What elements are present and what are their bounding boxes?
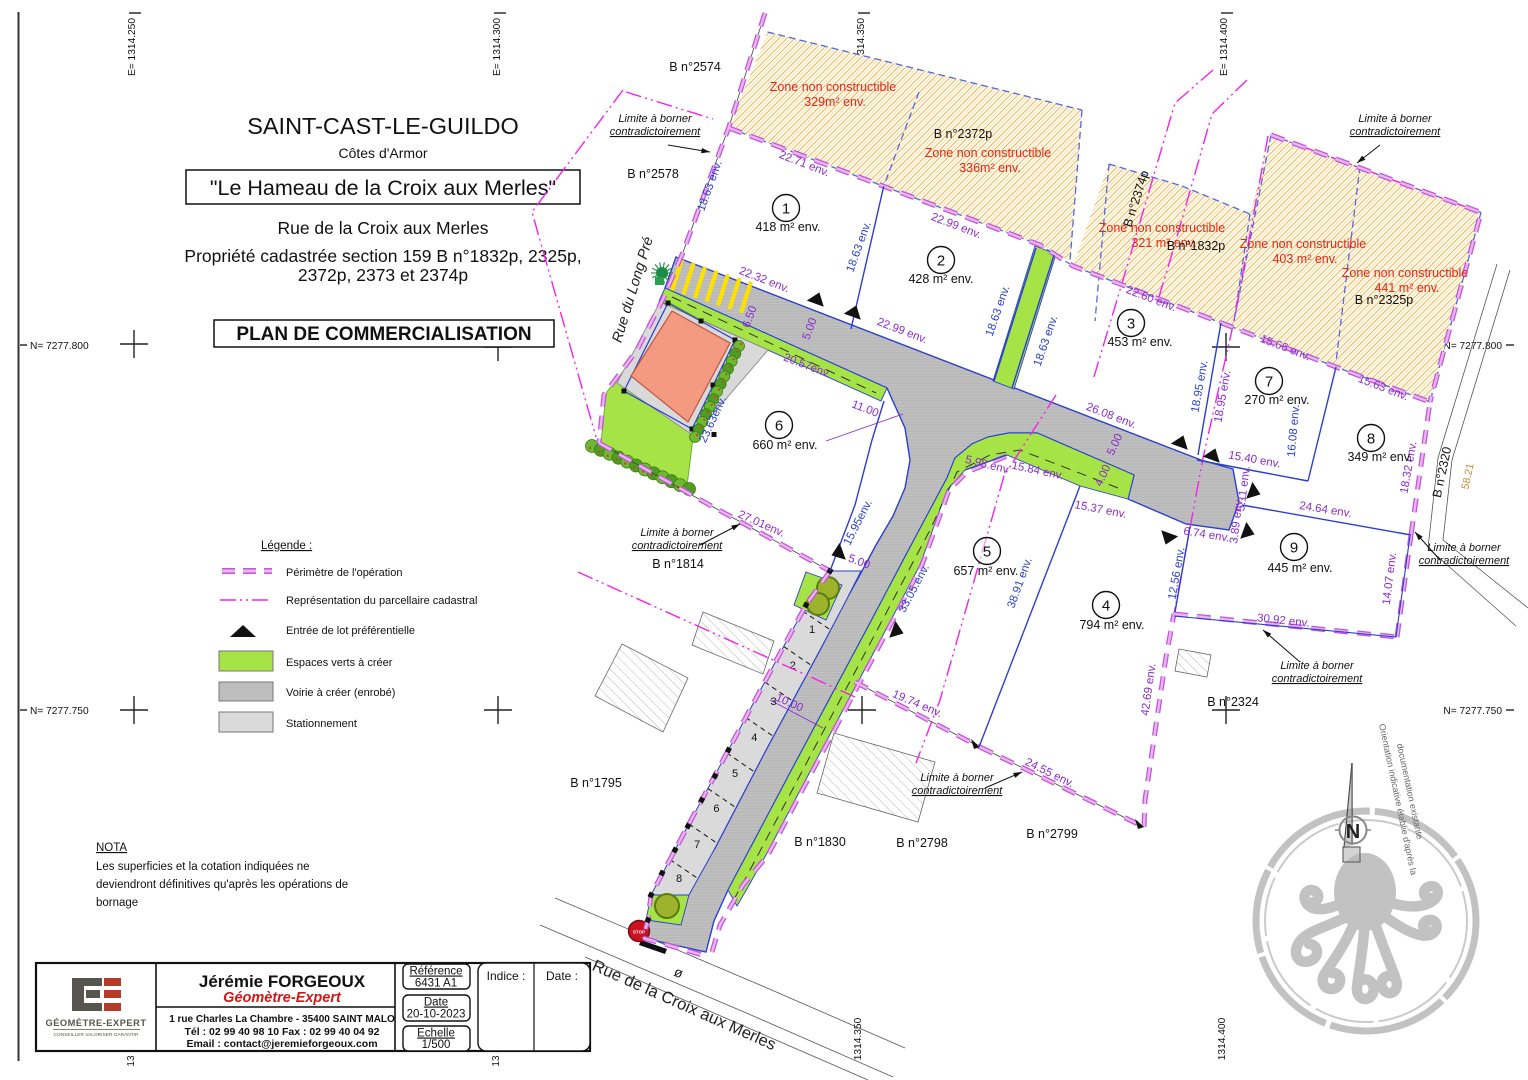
svg-text:13: 13: [126, 1055, 137, 1067]
svg-text:660 m² env.: 660 m² env.: [752, 438, 817, 452]
svg-text:Zone non constructible: Zone non constructible: [925, 146, 1052, 160]
svg-text:4: 4: [1102, 598, 1110, 615]
svg-text:5: 5: [983, 544, 991, 561]
svg-text:1: 1: [809, 624, 815, 636]
svg-text:E= 1314.300: E= 1314.300: [492, 18, 503, 76]
svg-text:453 m² env.: 453 m² env.: [1107, 335, 1172, 349]
svg-text:B n°2578: B n°2578: [627, 167, 679, 181]
svg-text:contradictoirement: contradictoirement: [1350, 126, 1441, 138]
svg-text:B n°1832p: B n°1832p: [1167, 239, 1226, 253]
svg-text:8: 8: [676, 873, 682, 885]
svg-text:7: 7: [1265, 374, 1273, 391]
svg-text:5: 5: [732, 768, 738, 780]
svg-text:13: 13: [491, 1055, 502, 1067]
svg-text:bornage: bornage: [96, 897, 138, 909]
svg-text:B n°2799: B n°2799: [1026, 827, 1078, 841]
svg-text:Zone non constructible: Zone non constructible: [1099, 221, 1226, 235]
svg-text:4: 4: [751, 732, 757, 744]
svg-text:Représentation du parcellaire: Représentation du parcellaire cadastral: [286, 595, 477, 607]
svg-text:20-10-2023: 20-10-2023: [407, 1009, 466, 1021]
svg-text:B n°1830: B n°1830: [794, 835, 846, 849]
svg-text:1: 1: [782, 201, 790, 218]
svg-text:Limite à borner: Limite à borner: [1280, 660, 1355, 672]
svg-text:Date: Date: [424, 997, 448, 1009]
svg-text:Limite à borner: Limite à borner: [1358, 113, 1433, 125]
svg-text:N= 7277.750: N= 7277.750: [1443, 706, 1502, 717]
svg-text:contradictoirement: contradictoirement: [1419, 555, 1510, 567]
svg-text:B n°2372p: B n°2372p: [934, 127, 993, 141]
svg-text:Espaces verts à créer: Espaces verts à créer: [286, 657, 393, 669]
svg-text:403 m² env.: 403 m² env.: [1272, 252, 1337, 266]
svg-text:B n°2325p: B n°2325p: [1355, 293, 1414, 307]
svg-text:Zone non constructible: Zone non constructible: [770, 80, 897, 94]
svg-text:2: 2: [937, 253, 945, 270]
svg-text:E= 1314.250: E= 1314.250: [127, 18, 138, 76]
svg-text:B n°1795: B n°1795: [570, 776, 622, 790]
svg-text:Tél : 02 99 40 98 10 Fax : 0: Tél : 02 99 40 98 10 Fax : 02 99 40 04 9…: [185, 1026, 380, 1038]
svg-text:B n°2324: B n°2324: [1207, 695, 1259, 709]
svg-text:445 m² env.: 445 m² env.: [1267, 561, 1332, 575]
svg-text:contradictoirement: contradictoirement: [610, 126, 701, 138]
svg-text:2372p, 2373 et 2374p: 2372p, 2373 et 2374p: [298, 265, 468, 285]
svg-text:B n°2798: B n°2798: [896, 836, 948, 850]
svg-text:STOP: STOP: [633, 930, 645, 935]
svg-text:3: 3: [1127, 316, 1135, 333]
svg-text:Rue de la Croix aux Merles: Rue de la Croix aux Merles: [277, 218, 488, 238]
svg-text:349 m² env.: 349 m² env.: [1347, 450, 1412, 464]
svg-text:8: 8: [1367, 431, 1375, 448]
svg-text:B n°2574: B n°2574: [669, 60, 721, 74]
svg-text:1 rue Charles La Chambre - 354: 1 rue Charles La Chambre - 35400 SAINT M…: [169, 1014, 395, 1025]
svg-text:contradictoirement: contradictoirement: [632, 540, 723, 552]
svg-text:Limite à borner: Limite à borner: [920, 772, 995, 784]
svg-text:418 m² env.: 418 m² env.: [755, 220, 820, 234]
svg-text:GÉOMÈTRE-EXPERT: GÉOMÈTRE-EXPERT: [46, 1018, 147, 1028]
svg-text:Limite à borner: Limite à borner: [1427, 542, 1502, 554]
svg-text:Limite à borner: Limite à borner: [640, 527, 715, 539]
svg-text:Email : contact@jeremieforgeou: Email : contact@jeremieforgeoux.com: [186, 1038, 377, 1050]
svg-text:9: 9: [1290, 540, 1298, 557]
svg-text:Propriété cadastrée section 15: Propriété cadastrée section 159 B n°1832…: [184, 246, 581, 266]
svg-text:deviendront définitives qu'apr: deviendront définitives qu'après les opé…: [96, 879, 348, 891]
svg-text:N: N: [1346, 821, 1360, 843]
svg-text:1/500: 1/500: [422, 1039, 451, 1051]
svg-text:N= 7277.750: N= 7277.750: [30, 706, 89, 717]
svg-text:1314.400: 1314.400: [1217, 1017, 1228, 1060]
svg-text:Référence: Référence: [409, 966, 462, 978]
svg-text:657 m² env.: 657 m² env.: [953, 564, 1018, 578]
svg-text:Limite à borner: Limite à borner: [618, 113, 693, 125]
svg-text:Zone non constructible: Zone non constructible: [1240, 237, 1367, 251]
svg-text:B n°1814: B n°1814: [652, 557, 704, 571]
svg-text:NOTA: NOTA: [96, 842, 127, 854]
svg-text:contradictoirement: contradictoirement: [912, 785, 1003, 797]
svg-text:1314.350: 1314.350: [853, 1017, 864, 1060]
svg-text:E= 1314.400: E= 1314.400: [1219, 18, 1230, 76]
svg-text:Indice :: Indice :: [487, 969, 526, 983]
svg-text:336m² env.: 336m² env.: [959, 161, 1021, 175]
svg-text:Entrée de lot préférentielle: Entrée de lot préférentielle: [286, 625, 415, 637]
svg-text:Côtes d'Armor: Côtes d'Armor: [338, 145, 427, 161]
svg-text:428 m² env.: 428 m² env.: [908, 272, 973, 286]
svg-text:Jérémie FORGEOUX: Jérémie FORGEOUX: [199, 972, 366, 991]
svg-text:7: 7: [694, 839, 700, 851]
svg-text:Stationnement: Stationnement: [286, 718, 357, 730]
svg-text:Zone non constructible: Zone non constructible: [1342, 266, 1469, 280]
svg-text:6: 6: [775, 418, 783, 435]
svg-text:6: 6: [713, 803, 719, 815]
svg-text:Echelle: Echelle: [417, 1028, 455, 1040]
svg-text:Géomètre-Expert: Géomètre-Expert: [223, 990, 342, 1006]
svg-text:270 m² env.: 270 m² env.: [1244, 393, 1309, 407]
svg-text:Les superficies et la cotation: Les superficies et la cotation indiquées…: [96, 861, 310, 873]
svg-text:6431 A1: 6431 A1: [415, 978, 457, 990]
svg-text:Date :: Date :: [546, 969, 578, 983]
svg-text:CONSEILLER VALORISER GARANTIR: CONSEILLER VALORISER GARANTIR: [54, 1032, 139, 1038]
svg-text:794 m² env.: 794 m² env.: [1079, 618, 1144, 632]
svg-text:Périmètre de l'opération: Périmètre de l'opération: [286, 567, 402, 579]
svg-text:SAINT-CAST-LE-GUILDO: SAINT-CAST-LE-GUILDO: [247, 113, 519, 139]
svg-text:contradictoirement: contradictoirement: [1272, 673, 1363, 685]
svg-text:Légende :: Légende :: [261, 540, 312, 552]
svg-text:N= 7277.800: N= 7277.800: [30, 341, 89, 352]
svg-text:Voirie à créer (enrobé): Voirie à créer (enrobé): [286, 687, 395, 699]
svg-text:329m² env.: 329m² env.: [804, 95, 866, 109]
svg-text:PLAN DE COMMERCIALISATION: PLAN DE COMMERCIALISATION: [236, 324, 531, 345]
svg-text:"Le Hameau de la Croix aux Mer: "Le Hameau de la Croix aux Merles": [210, 176, 556, 200]
